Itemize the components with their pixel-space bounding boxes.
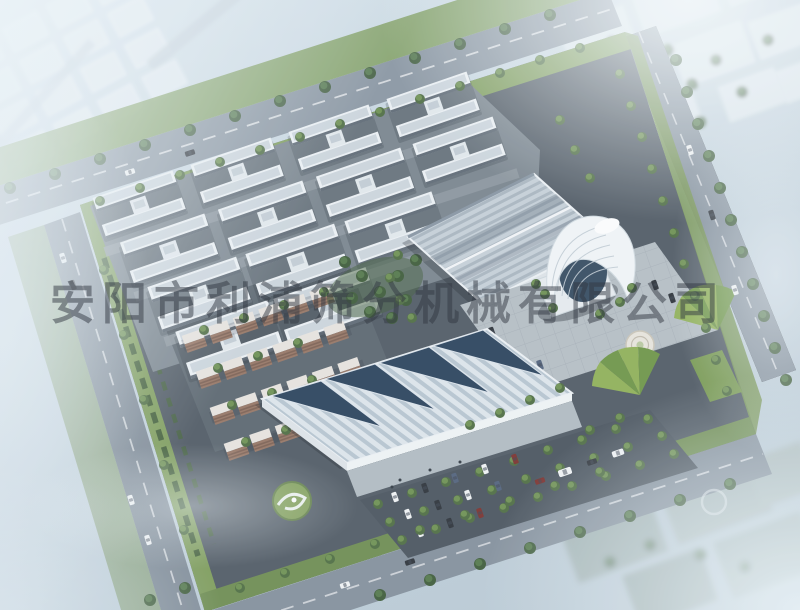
swirl-garden [273,482,311,520]
aerial-render: 安阳市利浦筛分机械有限公司 [0,0,800,610]
render-scene [0,0,800,610]
